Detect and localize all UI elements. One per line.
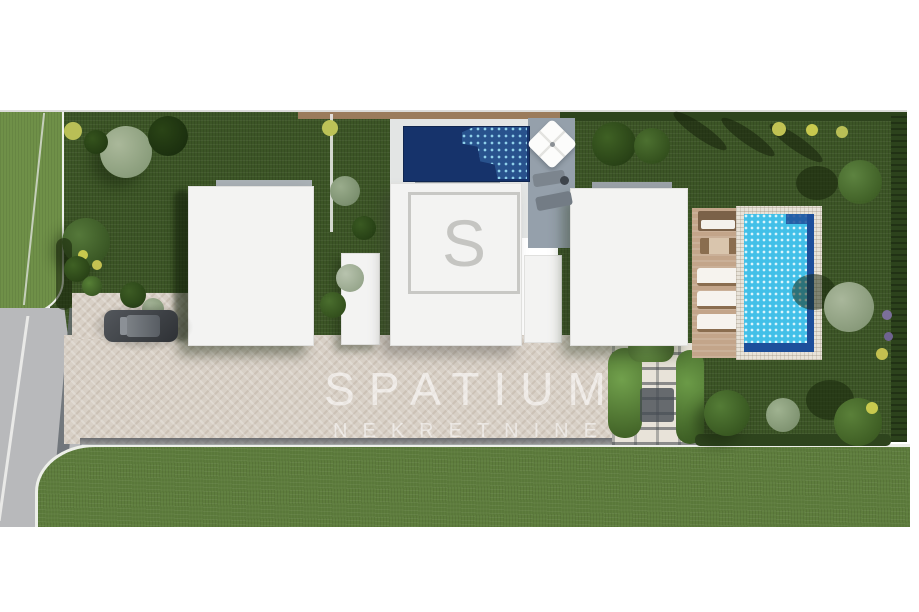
flower-bush-yellow: [836, 126, 848, 138]
tree: [634, 128, 670, 164]
shrub: [352, 216, 376, 240]
flower-bush-purple: [882, 310, 892, 320]
aerial-site-plan-render: S: [0, 0, 919, 612]
tree-shadow: [796, 166, 838, 200]
shrub: [330, 176, 360, 206]
shrub: [320, 292, 346, 318]
hedge-right-edge: [891, 114, 907, 442]
garden-pool-corner-shade: [786, 214, 814, 224]
outdoor-table-set: [700, 238, 738, 254]
pergola-vine: [676, 350, 704, 444]
tree: [704, 390, 750, 436]
shrub: [82, 276, 102, 296]
flower-bush-yellow: [772, 122, 786, 136]
villa-right: [570, 188, 688, 346]
car-windshield: [120, 317, 127, 335]
side-table: [560, 176, 569, 185]
flower-bush-yellow: [92, 260, 102, 270]
flower-bush-yellow: [806, 124, 818, 136]
render-area: S: [0, 110, 910, 527]
car-roof: [126, 315, 160, 337]
flower-bush-yellow: [866, 402, 878, 414]
flower-bush-yellow: [322, 120, 338, 136]
boundary-wall-top: [298, 112, 560, 119]
watermark-brand-text: SPATIUM: [250, 366, 680, 412]
annex-right-of-middle: [524, 255, 562, 343]
logo-letter: S: [442, 205, 486, 281]
tree: [100, 126, 152, 178]
shrub: [84, 130, 108, 154]
tree: [148, 116, 188, 156]
villa-left: [188, 186, 314, 346]
parked-car: [104, 310, 178, 342]
tree: [838, 160, 882, 204]
shrub: [766, 398, 800, 432]
front-lawn: [35, 444, 910, 527]
logo-square-watermark: S: [408, 192, 520, 294]
flower-bush-yellow: [64, 122, 82, 140]
flower-bush-purple: [884, 332, 893, 341]
parasol-pole: [550, 142, 555, 147]
daybed-cushion: [701, 220, 735, 229]
tree: [592, 122, 636, 166]
watermark-subtitle-text: NEKRETNINE: [250, 421, 680, 441]
shrub: [336, 264, 364, 292]
flower-bush-yellow: [876, 348, 888, 360]
tree: [824, 282, 874, 332]
brand-watermark: SPATIUM NEKRETNINE: [250, 366, 680, 441]
